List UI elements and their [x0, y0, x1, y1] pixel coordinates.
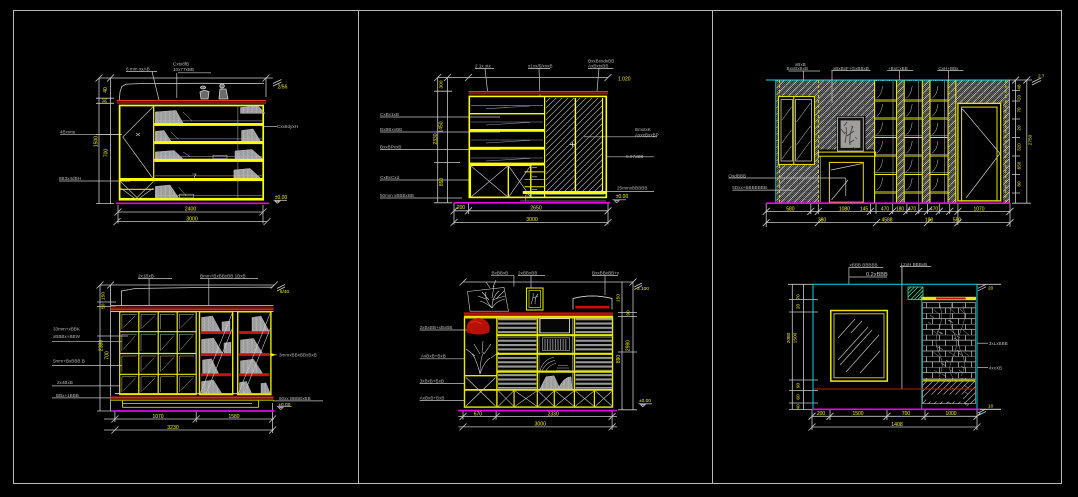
svg-text:2xBxBB+xBxBB: 2xBxBB+xBxBB — [420, 325, 453, 330]
svg-text:3000: 3000 — [526, 217, 538, 223]
svg-text:BxxBBxBB+x: BxxBBxBB+x — [592, 271, 620, 276]
svg-text:150: 150 — [616, 294, 622, 302]
svg-text:2/56: 2/56 — [278, 84, 288, 90]
svg-text:BxxBPxxB: BxxBPxxB — [380, 145, 401, 150]
svg-text:Cxx8dyxH: Cxx8dyxH — [277, 124, 298, 129]
svg-text:180: 180 — [896, 206, 905, 212]
svg-text:3.100: 3.100 — [637, 286, 649, 292]
svg-text:1580: 1580 — [228, 414, 239, 420]
svg-text:0.97xBB: 0.97xBB — [626, 154, 643, 159]
svg-text:150: 150 — [101, 292, 107, 300]
svg-text:2650: 2650 — [530, 205, 542, 211]
svg-text:670: 670 — [474, 411, 483, 417]
svg-text:25mmxBBBBB: 25mmxBBBBB — [617, 186, 647, 191]
svg-text:xBBB BBBBB: xBBB BBBBB — [850, 262, 878, 267]
svg-text:AxxxBxxBP: AxxxBxxBP — [635, 132, 659, 137]
svg-text:40: 40 — [103, 87, 109, 93]
svg-text:470: 470 — [881, 206, 890, 212]
svg-text:BxxBxBxB: BxxBxBxB — [787, 66, 808, 71]
svg-text:700: 700 — [902, 411, 911, 417]
svg-text:2x1BxB: 2x1BxB — [138, 274, 154, 279]
svg-text:2750: 2750 — [1028, 134, 1034, 145]
svg-text:70: 70 — [796, 294, 802, 300]
svg-text:300: 300 — [439, 80, 445, 88]
svg-text:±0.00: ±0.00 — [275, 195, 288, 201]
svg-text:Cxtx8fB: Cxtx8fB — [173, 62, 189, 67]
svg-text:145: 145 — [860, 206, 869, 212]
svg-text:1500: 1500 — [852, 411, 863, 417]
svg-text:2380: 2380 — [99, 340, 105, 351]
svg-text:48: 48 — [1017, 84, 1022, 90]
svg-text:1500: 1500 — [793, 332, 799, 343]
svg-text:470: 470 — [930, 206, 939, 212]
svg-text:2980: 2980 — [626, 340, 632, 351]
svg-text:2330: 2330 — [433, 133, 439, 144]
svg-text:2xBBxBB: 2xBBxBB — [518, 271, 537, 276]
svg-text:BBx+1BBB: BBx+1BBB — [56, 393, 79, 398]
svg-text:40: 40 — [796, 404, 802, 410]
svg-text:xBBBx+BBW: xBBBx+BBW — [53, 334, 81, 339]
svg-text:50: 50 — [101, 303, 107, 309]
svg-text:33mm+xBBK: 33mm+xBBK — [53, 327, 81, 332]
svg-text:50mm xBBBxBB: 50mm xBBBxBB — [380, 193, 414, 198]
svg-text:±0.00: ±0.00 — [278, 402, 290, 408]
svg-text:1070: 1070 — [152, 414, 163, 420]
svg-text:5Dxx+BBBBBBB: 5Dxx+BBBBBBB — [732, 185, 767, 190]
svg-text:580: 580 — [786, 206, 795, 212]
svg-text:3230: 3230 — [167, 425, 179, 431]
svg-text:1080: 1080 — [839, 206, 850, 212]
svg-text:200: 200 — [457, 205, 466, 211]
svg-text:700: 700 — [105, 351, 111, 360]
svg-text:3mmxBBxBBxBxB: 3mmxBBxBBxBxB — [279, 353, 317, 358]
svg-text:20: 20 — [1017, 95, 1022, 101]
svg-text:AxBxB+BxB: AxBxB+BxB — [420, 396, 445, 401]
svg-text:AxBxB+BxB: AxBxB+BxB — [421, 354, 446, 359]
svg-text:8B3x4dBH: 8B3x4dBH — [59, 176, 81, 181]
svg-text:L2xH BBBxB: L2xH BBBxB — [901, 262, 928, 267]
svg-text:Bmm+BxBBxBB 1BxB: Bmm+BxBBxBB 1BxB — [200, 274, 246, 279]
svg-text:200: 200 — [817, 411, 826, 417]
svg-text:650: 650 — [1017, 161, 1022, 169]
svg-text:3000: 3000 — [186, 216, 198, 222]
svg-text:1450: 1450 — [439, 121, 445, 132]
svg-text:3xLxBBB: 3xLxBBB — [989, 341, 1008, 346]
svg-text:±0.00: ±0.00 — [616, 194, 629, 200]
svg-text:2330: 2330 — [548, 411, 559, 417]
svg-text:5mm+BxBBB.B: 5mm+BxBBB.B — [53, 358, 85, 363]
svg-text:+BxCxBB: +BxCxBB — [888, 66, 908, 71]
svg-text:50xx BBBBxBB: 50xx BBBBxBB — [279, 396, 311, 401]
svg-text:1408: 1408 — [891, 422, 903, 428]
svg-text:xBxBxF+GxBBxB: xBxBxF+GxBBxB — [833, 66, 869, 71]
svg-text:4588: 4588 — [881, 218, 892, 224]
svg-text:1500: 1500 — [94, 136, 100, 147]
svg-text:4xxXB: 4xxXB — [989, 366, 1002, 371]
svg-text:20: 20 — [1017, 125, 1022, 131]
svg-text:20: 20 — [988, 285, 994, 291]
svg-text:380: 380 — [818, 218, 827, 224]
svg-text:2x4BxB: 2x4BxB — [57, 380, 73, 385]
svg-text:1.020: 1.020 — [618, 77, 631, 83]
svg-text:90: 90 — [796, 383, 802, 389]
svg-text:BxBBxxBB: BxBBxxBB — [380, 127, 402, 132]
svg-text:1070: 1070 — [973, 206, 984, 212]
svg-text:320: 320 — [1017, 143, 1022, 151]
svg-text:10: 10 — [988, 404, 994, 410]
svg-text:0.2xBBB: 0.2xBBB — [866, 272, 888, 278]
svg-text:60: 60 — [796, 394, 802, 400]
svg-text:6/40: 6/40 — [280, 289, 290, 295]
svg-text:AxBxtxBB: AxBxtxBB — [588, 63, 608, 68]
svg-text:20: 20 — [796, 304, 802, 310]
svg-text:3xBxB+BxB: 3xBxB+BxB — [420, 379, 444, 384]
svg-text:4Bxxtte: 4Bxxtte — [60, 129, 76, 134]
svg-text:890: 890 — [616, 355, 622, 364]
svg-text:80: 80 — [1017, 181, 1022, 187]
svg-text:30: 30 — [103, 98, 109, 104]
svg-text:±0.00: ±0.00 — [639, 398, 651, 404]
svg-text:70: 70 — [1017, 107, 1022, 113]
svg-text:CxH+BBx: CxH+BBx — [938, 66, 959, 71]
svg-text:2.7: 2.7 — [1038, 74, 1045, 79]
svg-text:x1xx/5/xxxB: x1xx/5/xxxB — [528, 63, 553, 68]
svg-text:90: 90 — [626, 310, 632, 316]
svg-text:10x77xBB: 10x77xBB — [173, 67, 194, 72]
svg-text:1000: 1000 — [945, 411, 956, 417]
svg-text:OxdBBB: OxdBBB — [728, 173, 746, 178]
svg-text:2080: 2080 — [786, 332, 792, 343]
svg-text:CxBx1xB: CxBx1xB — [380, 112, 399, 117]
svg-text:700: 700 — [104, 149, 110, 158]
svg-text:CxBxCxd: CxBxCxd — [380, 175, 400, 180]
svg-text:3000: 3000 — [535, 422, 547, 428]
svg-text:2 1x xtx: 2 1x xtx — [475, 63, 492, 68]
svg-text:2400: 2400 — [185, 207, 197, 213]
svg-text:6 mm·xxAB: 6 mm·xxAB — [126, 67, 150, 72]
svg-text:BmxtxK: BmxtxK — [635, 127, 652, 132]
svg-text:850: 850 — [439, 178, 445, 187]
svg-text:BxBBxB: BxBBxB — [492, 270, 509, 275]
